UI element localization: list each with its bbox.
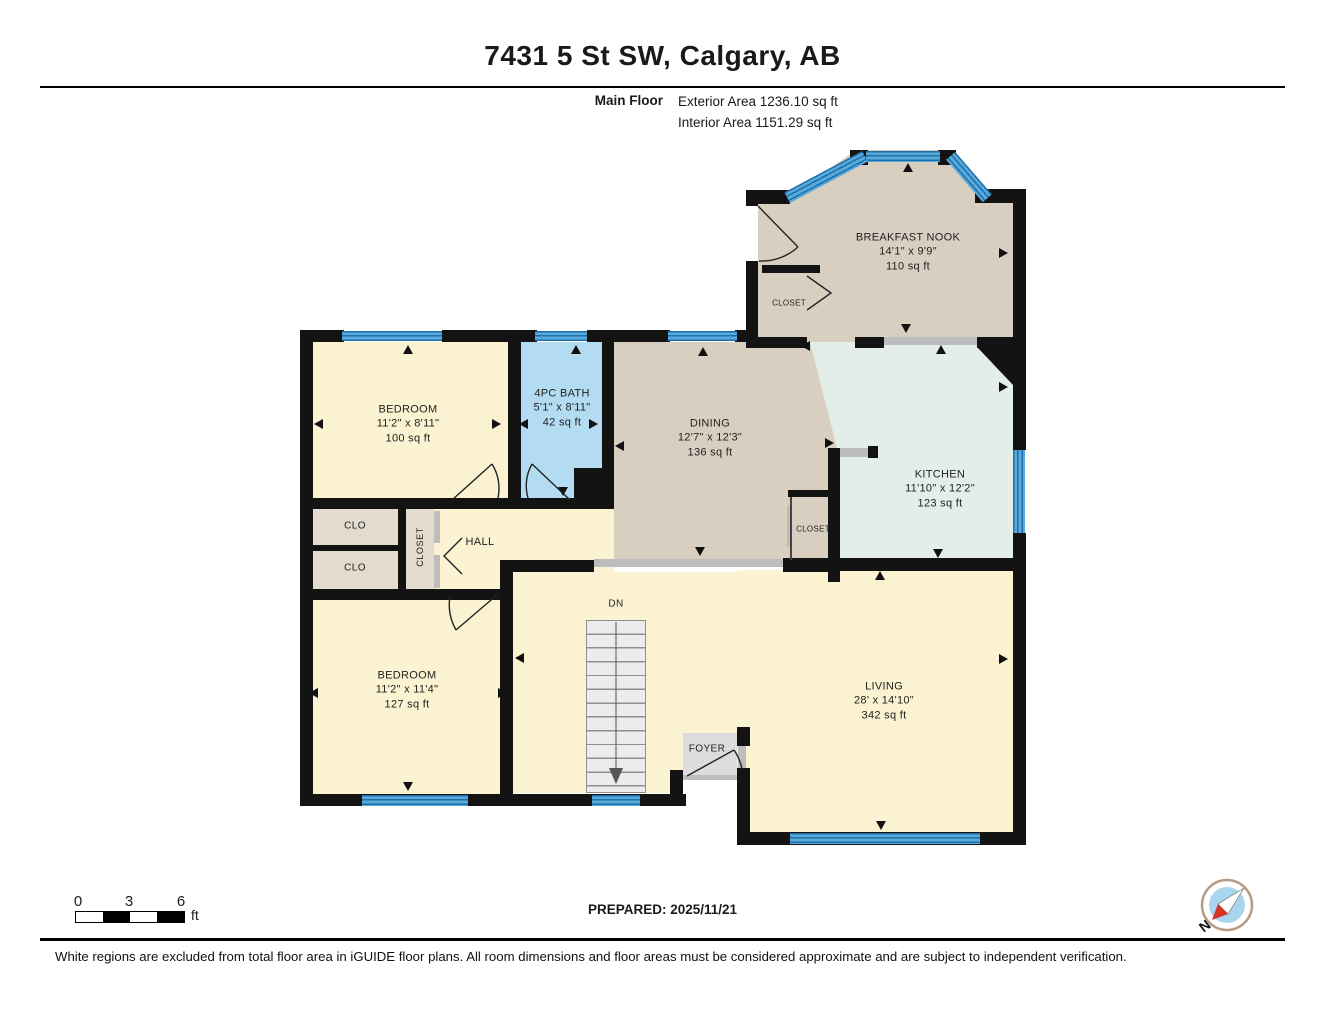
room-name: DINING <box>678 417 742 431</box>
door-swings-overlay <box>0 0 1325 1024</box>
room-area: 342 sq ft <box>854 708 914 722</box>
room-area: 110 sq ft <box>856 259 960 273</box>
room-dims: 11'2" x 11'4" <box>376 683 439 697</box>
closet-label-nook: CLOSET <box>772 299 806 308</box>
room-dims: 12'7" x 12'3" <box>678 431 742 445</box>
room-area: 100 sq ft <box>377 431 440 445</box>
room-label-living: LIVING 28' x 14'10" 342 sq ft <box>854 680 914 723</box>
direction-arrow <box>936 345 946 354</box>
direction-arrow <box>571 345 581 354</box>
direction-arrow <box>801 341 810 351</box>
prepared-date: PREPARED: 2025/11/21 <box>0 902 1325 917</box>
closet-label-kitchen: CLOSET <box>796 525 830 534</box>
direction-arrow <box>615 441 624 451</box>
room-area: 127 sq ft <box>376 697 439 711</box>
room-name: BEDROOM <box>376 669 439 683</box>
footer-divider <box>40 938 1285 941</box>
room-dims: 11'10" x 12'2" <box>905 482 975 496</box>
direction-arrow <box>933 549 943 558</box>
direction-arrow <box>403 589 413 598</box>
direction-arrow <box>314 419 323 429</box>
direction-arrow <box>403 782 413 791</box>
disclaimer-text: White regions are excluded from total fl… <box>55 949 1127 964</box>
room-dims: 5'1" x 8'11" <box>534 401 591 415</box>
direction-arrow <box>695 547 705 556</box>
direction-arrow <box>558 487 568 496</box>
direction-arrow <box>999 248 1008 258</box>
direction-arrow <box>875 571 885 580</box>
direction-arrow <box>589 419 598 429</box>
room-dims: 28' x 14'10" <box>854 694 914 708</box>
clo-label-top: CLO <box>344 521 366 532</box>
room-label-bedroom-bottom: BEDROOM 11'2" x 11'4" 127 sq ft <box>376 669 439 712</box>
stairs-down-arrow <box>609 768 623 784</box>
direction-arrow <box>901 324 911 333</box>
room-area: 136 sq ft <box>678 445 742 459</box>
compass-icon: N <box>1194 874 1264 942</box>
room-name: LIVING <box>854 680 914 694</box>
direction-arrow <box>403 345 413 354</box>
closet-label-vertical: CLOSET <box>415 527 425 567</box>
room-name: 4PC BATH <box>534 387 591 401</box>
room-dims: 11'2" x 8'11" <box>377 417 440 431</box>
room-area: 123 sq ft <box>905 496 975 510</box>
foyer-label: FOYER <box>689 744 725 755</box>
direction-arrow <box>309 688 318 698</box>
floor-plan-page: 7431 5 St SW, Calgary, AB Main Floor Ext… <box>0 0 1325 1024</box>
direction-arrow <box>876 821 886 830</box>
room-label-kitchen: KITCHEN 11'10" x 12'2" 123 sq ft <box>905 468 975 511</box>
room-label-bath: 4PC BATH 5'1" x 8'11" 42 sq ft <box>534 387 591 430</box>
direction-arrow <box>492 419 501 429</box>
clo-label-bottom: CLO <box>344 563 366 574</box>
room-dims: 14'1" x 9'9" <box>856 245 960 259</box>
room-name: KITCHEN <box>905 468 975 482</box>
direction-arrow <box>825 438 834 448</box>
room-area: 42 sq ft <box>534 415 591 429</box>
room-label-breakfast-nook: BREAKFAST NOOK 14'1" x 9'9" 110 sq ft <box>856 231 960 274</box>
direction-arrow <box>999 382 1008 392</box>
room-name: BEDROOM <box>377 403 440 417</box>
room-label-dining: DINING 12'7" x 12'3" 136 sq ft <box>678 417 742 460</box>
direction-arrow <box>698 347 708 356</box>
hall-label: HALL <box>465 536 494 548</box>
direction-arrow <box>515 653 524 663</box>
direction-arrow <box>903 163 913 172</box>
direction-arrow <box>519 419 528 429</box>
direction-arrow <box>498 688 507 698</box>
room-name: BREAKFAST NOOK <box>856 231 960 245</box>
room-label-bedroom-top: BEDROOM 11'2" x 8'11" 100 sq ft <box>377 403 440 446</box>
direction-arrow <box>999 654 1008 664</box>
stairs-dn-label: DN <box>608 599 623 610</box>
